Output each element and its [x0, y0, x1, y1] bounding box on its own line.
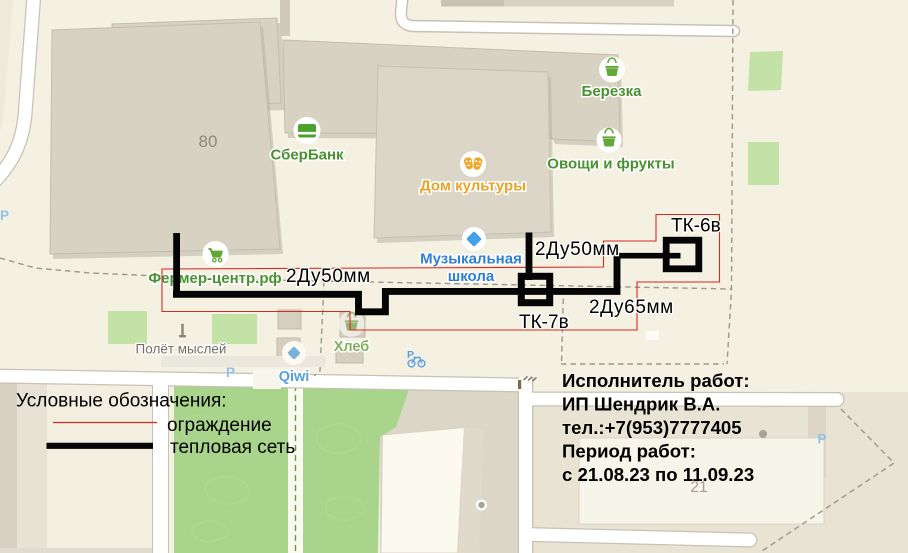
svg-text:Условные обозначения:: Условные обозначения: [16, 391, 227, 412]
svg-text:тепловая сеть: тепловая сеть [170, 437, 295, 458]
svg-text:80: 80 [199, 132, 218, 151]
svg-text:ТК-6в: ТК-6в [671, 216, 721, 237]
svg-text:2Ду50мм: 2Ду50мм [286, 266, 371, 287]
svg-text:Хлеб: Хлеб [334, 339, 370, 355]
svg-text:2Ду65мм: 2Ду65мм [589, 297, 674, 318]
svg-text:Музыкальная: Музыкальная [420, 251, 522, 268]
svg-text:Дом культуры: Дом культуры [420, 178, 526, 195]
svg-text:Березка: Березка [582, 83, 643, 100]
svg-text:Исполнитель работ:: Исполнитель работ: [562, 370, 750, 391]
svg-text:P: P [817, 432, 826, 447]
svg-text:P: P [226, 365, 235, 380]
svg-text:Полёт мыслей: Полёт мыслей [136, 342, 227, 357]
svg-text:Фермер-центр.рф: Фермер-центр.рф [148, 270, 281, 287]
svg-text:P: P [0, 208, 9, 223]
svg-text:с 21.08.23 по 11.09.23: с 21.08.23 по 11.09.23 [562, 464, 754, 485]
svg-text:Овощи и фрукты: Овощи и фрукты [547, 156, 674, 173]
svg-text:P: P [407, 349, 414, 361]
svg-text:2Ду50мм: 2Ду50мм [535, 239, 620, 260]
svg-text:школа: школа [448, 268, 495, 285]
svg-text:ИП Шендрик В.А.: ИП Шендрик В.А. [562, 394, 720, 415]
svg-text:ограждение: ограждение [167, 415, 272, 436]
svg-text:СберБанк: СберБанк [270, 147, 344, 164]
svg-text:Qiwi: Qiwi [279, 369, 310, 385]
svg-text:ТК-7в: ТК-7в [519, 312, 569, 333]
svg-text:тел.:+7(953)7777405: тел.:+7(953)7777405 [562, 417, 742, 438]
svg-text:Период работ:: Период работ: [562, 441, 696, 462]
